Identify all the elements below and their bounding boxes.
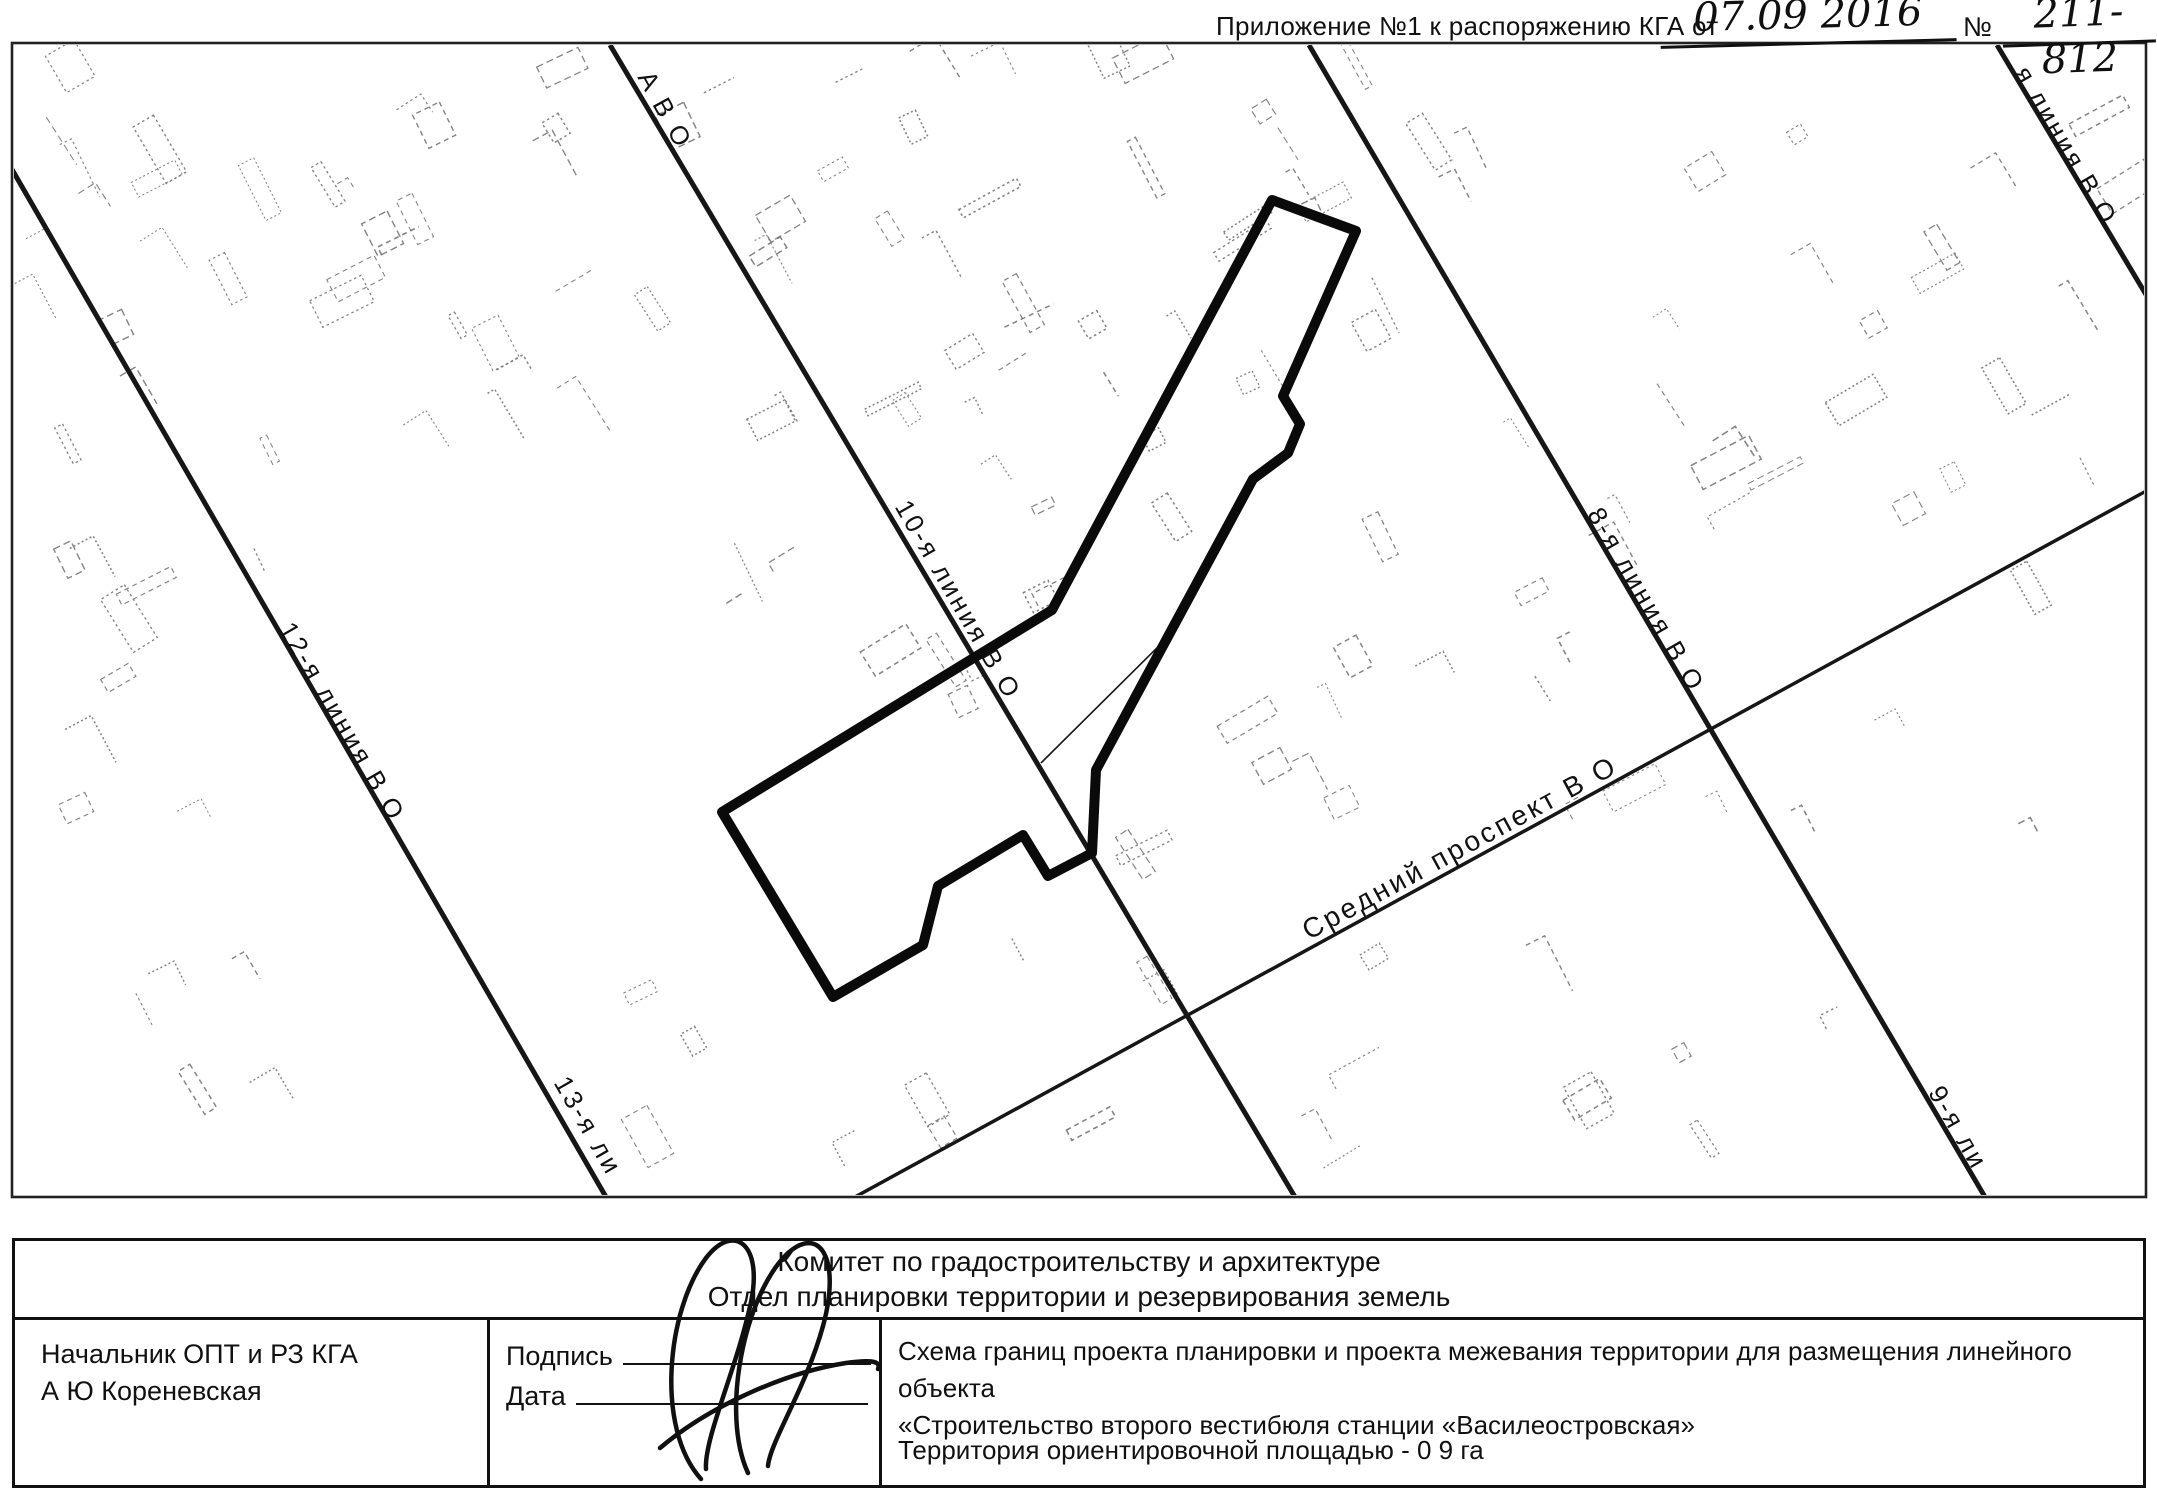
signature-underline [623, 1339, 871, 1365]
building-texture [7, 33, 2157, 1168]
street-label: 9-я ли [1922, 1080, 1995, 1175]
date-underline [576, 1379, 868, 1405]
street-minor-lot-line [1041, 635, 1170, 763]
title-block: Комитет по градостроительству и архитект… [12, 1238, 2146, 1488]
official-name: А Ю Кореневская [41, 1373, 487, 1410]
street-lines [10, 45, 2148, 1197]
scheme-title-cell: Схема границ проекта планировки и проект… [882, 1320, 2143, 1485]
official-position: Начальник ОПТ и РЗ КГА [41, 1336, 487, 1373]
map-frame [12, 43, 2146, 1197]
date-label: Дата [506, 1381, 566, 1411]
street-label: я линия В О [2008, 61, 2124, 232]
scheme-title-line1: Схема границ проекта планировки и проект… [898, 1333, 2121, 1407]
street-line-10 [610, 45, 1295, 1197]
street-label: 8-я линия В О [1581, 502, 1712, 698]
area-note: Территория ориентировочной площадью - 0 … [898, 1432, 1484, 1469]
street-label: 12-я линия В О [272, 617, 412, 828]
street-label: 10-я линия В О [888, 495, 1028, 706]
street-line-12-13 [10, 166, 606, 1197]
signature-label: Подпись [506, 1341, 613, 1371]
street-label: Средний проспект В О [1297, 749, 1623, 946]
org-name-line2: Отдел планировки территории и резервиров… [708, 1279, 1451, 1314]
handwritten-document-number: 211-812 [2001, 0, 2156, 48]
street-line-7 [1997, 45, 2148, 298]
scanned-planning-document: Приложение №1 к распоряжению КГА от 07.0… [0, 0, 2157, 1502]
street-label: 13-я ли [547, 1071, 629, 1181]
title-block-header: Комитет по градостроительству и архитект… [15, 1241, 2143, 1320]
street-sredny-prospekt [855, 490, 2148, 1197]
signature-line: Подпись [506, 1336, 879, 1376]
handwritten-date: 07.09 2016 [1659, 0, 1956, 49]
official-cell: Начальник ОПТ и РЗ КГА А Ю Кореневская [15, 1320, 490, 1485]
number-sign: № [1963, 12, 1992, 43]
signature-cell: Подпись Дата [490, 1320, 882, 1485]
date-line: Дата [506, 1376, 879, 1416]
street-line-8-9 [1309, 45, 1985, 1197]
appendix-header-label: Приложение №1 к распоряжению КГА от [1216, 11, 1718, 42]
title-block-row: Начальник ОПТ и РЗ КГА А Ю Кореневская П… [15, 1320, 2143, 1485]
street-label: А В О [631, 66, 699, 155]
org-name-line1: Комитет по градостроительству и архитект… [777, 1244, 1380, 1279]
project-boundary-polygon [722, 200, 1356, 997]
